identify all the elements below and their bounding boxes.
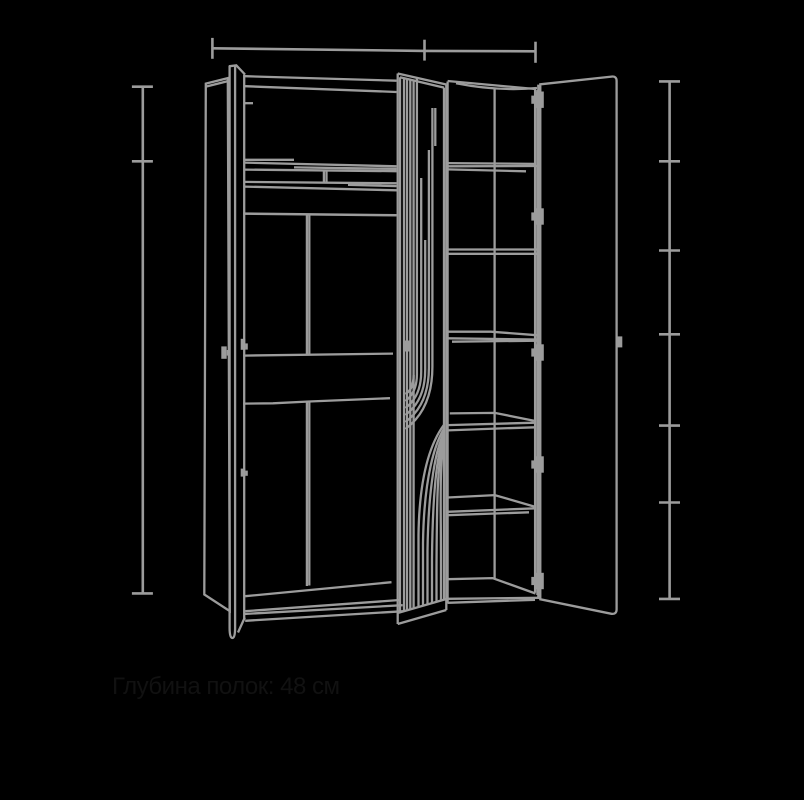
svg-text:Глубина полок: 48 см: Глубина полок: 48 см [112,673,339,700]
